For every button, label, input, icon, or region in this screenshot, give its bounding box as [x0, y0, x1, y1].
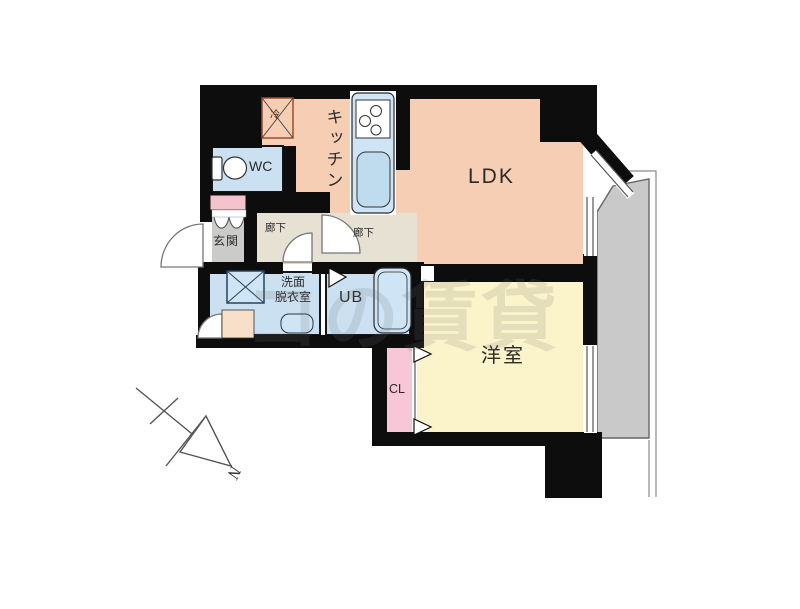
storage-box — [222, 310, 254, 338]
shoe-cabinet-counter — [212, 210, 246, 217]
washing-machine-icon — [227, 271, 264, 303]
kitchen-sink-icon — [357, 152, 390, 207]
balcony-deck — [597, 179, 649, 438]
washroom-sink-icon — [281, 314, 313, 333]
compass — [136, 388, 231, 466]
shoe-cabinet — [210, 195, 246, 210]
floor-plan: キッチン LDK WC 玄関 廊下 廊下 洗面 脱衣室 UB CL 洋室 冷 N… — [0, 0, 800, 609]
label-hallway-2: 廊下 — [353, 227, 374, 240]
north-arrow — [180, 416, 231, 466]
label-kitchen: キッチン — [322, 108, 342, 192]
bathtub-icon — [374, 268, 411, 333]
label-ldk: LDK — [468, 164, 515, 189]
wall-notch — [421, 266, 434, 281]
wc-floor — [212, 146, 283, 192]
floor-plan-drawing — [0, 0, 800, 609]
label-wc: WC — [249, 158, 272, 175]
label-washroom: 洗面 脱衣室 — [263, 275, 323, 305]
label-unit-bath: UB — [339, 288, 363, 307]
label-western-room: 洋室 — [481, 344, 525, 368]
label-refrigerator: 冷 — [270, 110, 280, 122]
entrance-door-arc — [161, 224, 203, 267]
label-entrance: 玄関 — [213, 234, 239, 248]
balcony — [597, 171, 656, 497]
label-hallway-1: 廊下 — [265, 222, 286, 235]
label-closet: CL — [389, 382, 405, 397]
toilet-icon — [212, 157, 247, 180]
